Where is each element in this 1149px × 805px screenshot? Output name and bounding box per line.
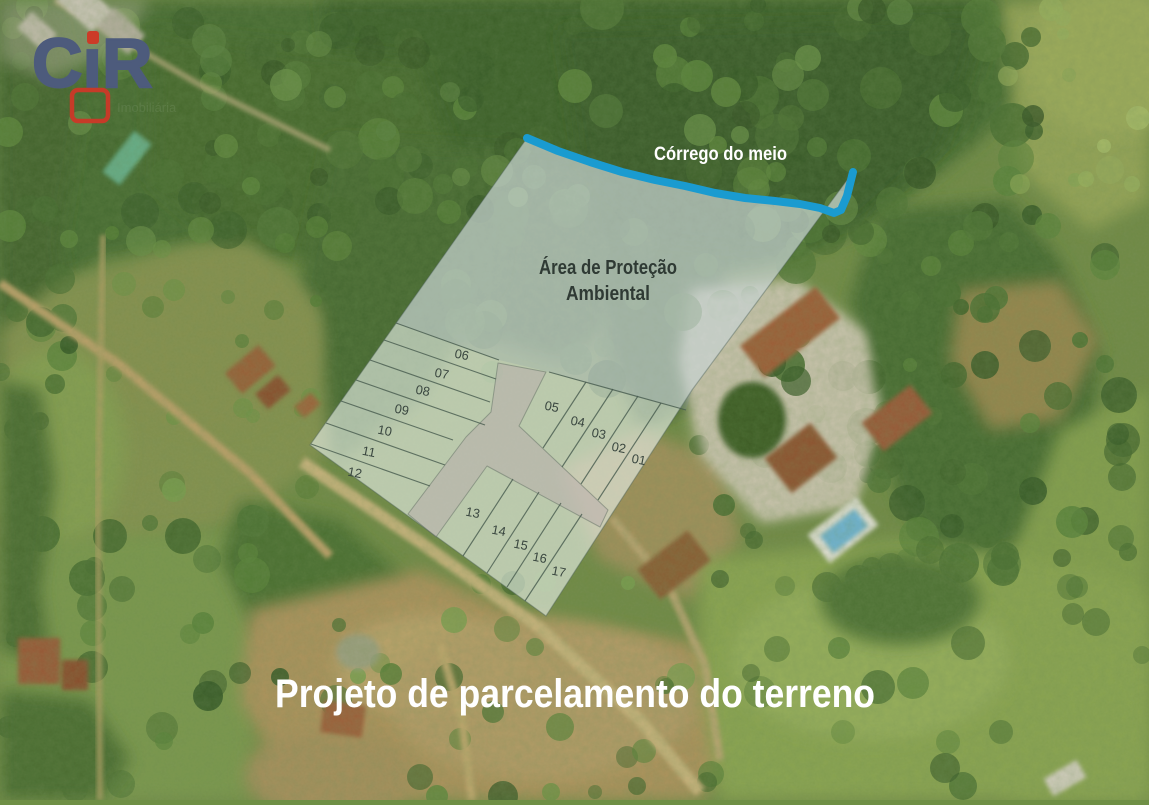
svg-text:Imobiliária: Imobiliária <box>117 100 177 115</box>
svg-text:07: 07 <box>433 365 450 382</box>
svg-text:14: 14 <box>490 522 507 539</box>
svg-text:09: 09 <box>393 401 410 418</box>
svg-text:04: 04 <box>569 413 586 430</box>
svg-text:05: 05 <box>543 398 560 415</box>
svg-text:16: 16 <box>531 549 548 566</box>
svg-text:Projeto de parcelamento do ter: Projeto de parcelamento do terreno <box>275 672 875 716</box>
svg-text:03: 03 <box>590 425 607 442</box>
svg-text:06: 06 <box>453 346 470 363</box>
svg-text:01: 01 <box>630 451 647 468</box>
svg-text:Córrego do meio: Córrego do meio <box>654 144 787 165</box>
svg-text:02: 02 <box>610 439 627 456</box>
svg-text:11: 11 <box>361 443 377 460</box>
svg-text:15: 15 <box>512 536 529 553</box>
svg-text:Ambiental: Ambiental <box>566 283 650 305</box>
svg-text:12: 12 <box>346 464 363 481</box>
svg-text:13: 13 <box>464 504 481 521</box>
svg-text:17: 17 <box>550 563 567 580</box>
svg-text:Área de Proteção: Área de Proteção <box>539 256 677 279</box>
svg-text:08: 08 <box>414 382 431 399</box>
svg-text:10: 10 <box>376 422 393 439</box>
